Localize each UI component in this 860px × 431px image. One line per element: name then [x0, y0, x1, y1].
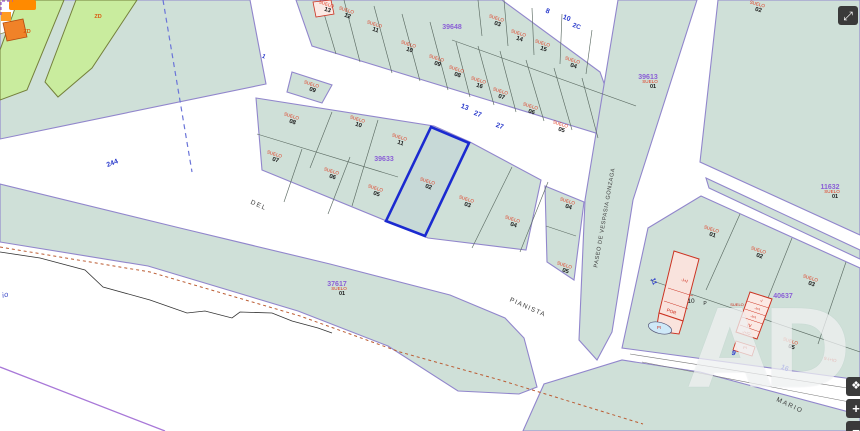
- building-annotation: 10: [687, 298, 695, 305]
- pan-button[interactable]: ❖: [846, 377, 860, 396]
- zone-label: ZD: [23, 29, 30, 35]
- orange-marker: [9, 0, 36, 10]
- block-id-label: 40637: [773, 293, 793, 300]
- zoom-in-icon: +: [852, 402, 860, 415]
- block-parcel-number: 01: [650, 84, 656, 90]
- block-parcel-number: 01: [832, 194, 838, 200]
- map-viewer: SUELO13SUELO12SUELO11SUELO10SUELO09SUELO…: [0, 0, 860, 431]
- zoom-out-button[interactable]: −: [846, 421, 860, 431]
- cadastral-map[interactable]: SUELO13SUELO12SUELO11SUELO10SUELO09SUELO…: [0, 0, 860, 431]
- block-id-label: 37617: [327, 281, 347, 288]
- block-id-label: 11632: [820, 184, 839, 191]
- zoom-out-icon: −: [852, 424, 860, 431]
- building-annotation: SUELO: [730, 302, 744, 307]
- fullscreen-button[interactable]: ⤢: [838, 6, 858, 25]
- block-parcel-number: 01: [339, 291, 345, 297]
- pan-icon: ❖: [851, 381, 860, 392]
- block-id-label: 39648: [442, 24, 462, 31]
- fullscreen-icon: ⤢: [843, 10, 853, 22]
- zone-label: ZD: [94, 14, 101, 20]
- building-annotation: PI: [657, 325, 661, 330]
- building-annotation: PI: [743, 345, 747, 350]
- block-id-label: 39633: [374, 156, 394, 163]
- block-id-label: 39613: [638, 74, 658, 81]
- zoom-in-button[interactable]: +: [846, 399, 860, 418]
- orange-marker-small: [1, 12, 11, 21]
